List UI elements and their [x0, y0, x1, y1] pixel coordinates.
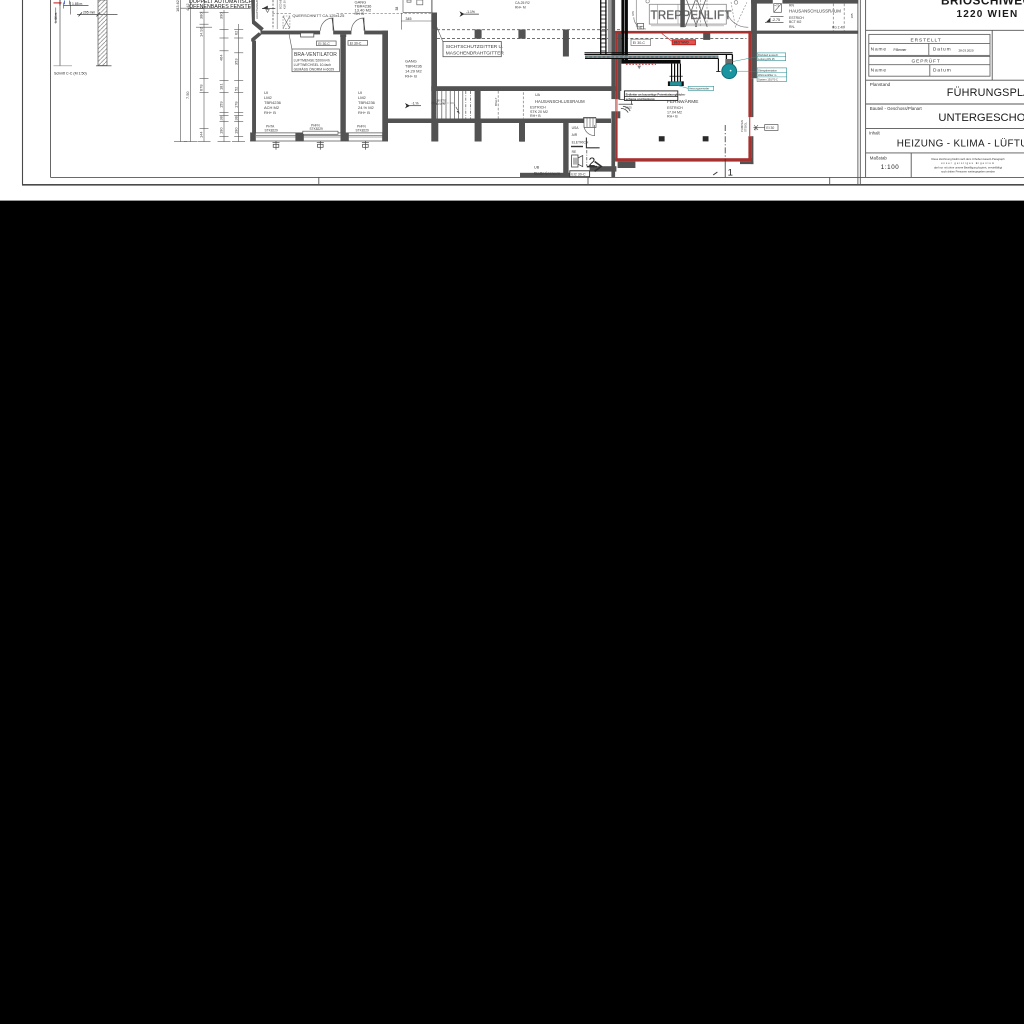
svg-text:Leitung DN 25: Leitung DN 25 — [758, 57, 775, 61]
svg-text:14.92: 14.92 — [199, 27, 204, 37]
svg-text:295 mm: 295 mm — [83, 10, 95, 14]
svg-text:DN25: DN25 — [625, 106, 632, 110]
svg-text:RG 2.40: RG 2.40 — [832, 25, 844, 29]
svg-text:System 130/70 C: System 130/70 C — [758, 77, 778, 81]
svg-text:unser geistiges Eigentum: unser geistiges Eigentum — [941, 161, 995, 165]
svg-text:RN: RN — [631, 11, 635, 15]
svg-text:B6xLT: B6xLT — [494, 97, 498, 106]
svg-text:BCD AB: BCD AB — [279, 0, 283, 9]
svg-text:Name: Name — [871, 68, 887, 74]
svg-text:380: 380 — [199, 12, 204, 19]
svg-text:Datum: Datum — [933, 68, 952, 74]
svg-text:RH+ M: RH+ M — [515, 5, 526, 9]
svg-text:EI2 30-C: EI2 30-C — [571, 172, 586, 176]
svg-text:STK8229: STK8229 — [265, 128, 279, 132]
svg-text:Diese Zeichnung bleibt nach de: Diese Zeichnung bleibt nach dem Urheber-… — [931, 157, 1005, 161]
svg-text:LUFTMENGE 5200m³/h: LUFTMENGE 5200m³/h — [294, 58, 330, 62]
svg-text:464: 464 — [219, 54, 224, 61]
svg-text:ESTRICH: ESTRICH — [789, 16, 804, 20]
svg-text:EI 30-C: EI 30-C — [318, 42, 330, 46]
svg-text:QUERSCHNITT CA.125x125: QUERSCHNITT CA.125x125 — [292, 13, 345, 18]
svg-text:-2.75: -2.75 — [772, 18, 780, 22]
svg-text:Datum: Datum — [933, 46, 952, 52]
svg-text:EI 30-C: EI 30-C — [633, 41, 646, 45]
svg-text:Heizungsverteiler: Heizungsverteiler — [689, 87, 709, 91]
svg-text:USA: USA — [572, 126, 580, 130]
svg-text:-1.1%: -1.1% — [466, 10, 475, 14]
svg-text:Inhalt: Inhalt — [869, 131, 881, 136]
svg-text:BRIOSCHIWEG: BRIOSCHIWEG — [941, 0, 1024, 7]
svg-text:144: 144 — [199, 131, 204, 138]
svg-text:190: 190 — [219, 127, 224, 134]
svg-text:1:100: 1:100 — [881, 164, 899, 171]
svg-text:RH B: RH B — [355, 11, 365, 16]
svg-text:AIR: AIR — [572, 133, 578, 137]
svg-text:Planstand: Planstand — [870, 82, 891, 87]
svg-text:ÖFFNENBARES FENSTER: ÖFFNENBARES FENSTER — [189, 3, 255, 10]
svg-text:CA.25 R2: CA.25 R2 — [515, 1, 530, 5]
svg-text:678: 678 — [199, 85, 204, 92]
svg-text:UNTERGESCHOSS: UNTERGESCHOSS — [938, 112, 1024, 124]
svg-text:LUFTWECHSEL 10-fach: LUFTWECHSEL 10-fach — [294, 63, 331, 67]
svg-text:HAUSANSCHLUSSRAUM: HAUSANSCHLUSSRAUM — [535, 99, 585, 104]
svg-text:Übergabestation: Übergabestation — [758, 68, 778, 72]
svg-text:Schnitt C-C (M 1:50): Schnitt C-C (M 1:50) — [54, 72, 87, 76]
svg-text:Batterieraum: Batterieraum — [534, 171, 560, 176]
svg-text:1.44 m: 1.44 m — [54, 12, 58, 23]
svg-text:RH+ B: RH+ B — [530, 114, 541, 118]
svg-text:38: 38 — [219, 116, 224, 120]
svg-text:RN: RN — [789, 4, 794, 8]
svg-text:38: 38 — [233, 116, 238, 120]
svg-text:185: 185 — [850, 13, 854, 18]
svg-text:353: 353 — [233, 59, 238, 66]
svg-text:178: 178 — [233, 102, 238, 109]
svg-text:schiene und Heizung: schiene und Heizung — [626, 97, 655, 101]
svg-text:darf nur mit ohne unsere Bewil: darf nur mit ohne unsere Bewilligung kop… — [934, 165, 1002, 169]
svg-text:159: 159 — [219, 102, 224, 109]
svg-text:1.85 m: 1.85 m — [72, 2, 83, 6]
svg-text:P.Benner: P.Benner — [894, 48, 908, 52]
svg-text:UB: UB — [534, 166, 540, 170]
svg-text:EI 30-C: EI 30-C — [350, 41, 362, 45]
svg-text:Bauteil - Geschoss/Planart: Bauteil - Geschoss/Planart — [870, 106, 923, 111]
svg-text:345: 345 — [406, 17, 412, 21]
svg-text:SICHTSCHUTZGITTER U.: SICHTSCHUTZGITTER U. — [446, 44, 504, 50]
svg-text:noch dritten Personen weiterge: noch dritten Personen weitergegeben werd… — [941, 170, 996, 174]
svg-text:1: 1 — [728, 167, 733, 178]
svg-text:RN-: RN- — [789, 25, 795, 29]
svg-text:RH+ B: RH+ B — [264, 110, 276, 115]
svg-text:BRA-VENTILATOR: BRA-VENTILATOR — [294, 52, 337, 58]
svg-text:ESTRICH: ESTRICH — [530, 105, 546, 109]
svg-text:KLR 20: KLR 20 — [282, 0, 286, 9]
svg-text:190: 190 — [233, 127, 238, 134]
svg-text:GEMÄSS ÖNORM H-6029: GEMÄSS ÖNORM H-6029 — [294, 68, 335, 72]
svg-text:RE: RE — [572, 150, 577, 154]
svg-text:7.50: 7.50 — [185, 91, 190, 99]
svg-text:Rücklauf ausserh.: Rücklauf ausserh. — [758, 53, 779, 57]
svg-text:RH+ B: RH+ B — [667, 114, 678, 118]
svg-text:HAUPTEINGANG: HAUPTEINGANG — [255, 0, 259, 19]
svg-text:62: 62 — [233, 31, 238, 35]
svg-text:BCT M2: BCT M2 — [789, 20, 801, 24]
svg-text:=75: =75 — [774, 3, 779, 7]
svg-text:GEPRÜFT: GEPRÜFT — [912, 58, 941, 65]
svg-text:STEIGL: STEIGL — [744, 122, 748, 132]
svg-text:+E: +E — [638, 25, 642, 29]
svg-text:EI 30: EI 30 — [766, 126, 774, 130]
svg-text:390: 390 — [219, 12, 224, 19]
svg-text:Maßstab: Maßstab — [870, 155, 888, 160]
svg-text:FÜHRUNGSPLAN: FÜHRUNGSPLAN — [947, 87, 1024, 99]
svg-text:Erdleiter an bauseitige Potent: Erdleiter an bauseitige Potentialausglei… — [626, 92, 686, 96]
svg-text:RH+ B: RH+ B — [405, 73, 417, 78]
svg-text:STK8229: STK8229 — [356, 128, 370, 132]
svg-text:UA: UA — [535, 93, 541, 97]
svg-text:Wärmezähler m.: Wärmezähler m. — [758, 73, 777, 77]
svg-text:STK8229: STK8229 — [310, 127, 324, 131]
svg-text:MASCHENDRAHTGITTER: MASCHENDRAHTGITTER — [446, 50, 505, 56]
svg-text:H 17.5: H 17.5 — [437, 102, 446, 106]
svg-text:1220 WIEN: 1220 WIEN — [957, 9, 1019, 20]
svg-text:52: 52 — [233, 87, 238, 91]
svg-text:183.62: 183.62 — [175, 0, 180, 12]
svg-text:-1.%: -1.% — [412, 102, 419, 106]
svg-text:HEIZUNG - KLIMA - LÜFTUNG: HEIZUNG - KLIMA - LÜFTUNG — [897, 138, 1024, 149]
svg-text:ERSTELLT: ERSTELLT — [911, 37, 942, 43]
svg-text:RH+ B: RH+ B — [358, 110, 370, 115]
svg-text:181: 181 — [219, 84, 224, 91]
svg-text:38: 38 — [395, 7, 399, 11]
svg-text:Name: Name — [871, 46, 887, 52]
svg-text:28.03.2020: 28.03.2020 — [959, 48, 974, 52]
svg-text:ESTRICH: ESTRICH — [667, 106, 683, 110]
svg-text:BESTAND: BESTAND — [674, 41, 690, 45]
